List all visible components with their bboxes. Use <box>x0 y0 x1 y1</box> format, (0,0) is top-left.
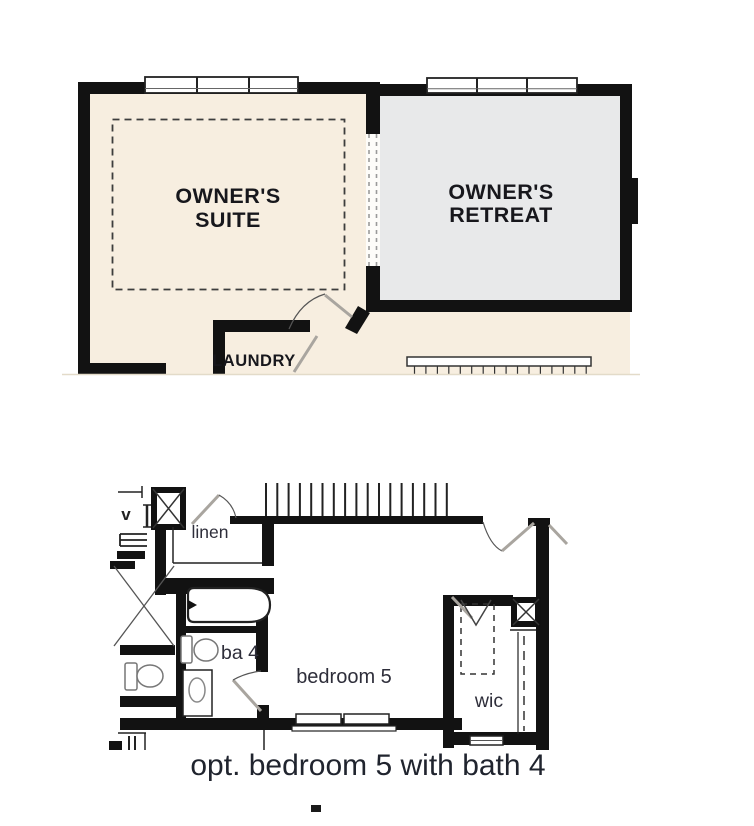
vent-label: v <box>121 505 131 524</box>
wall-linen-right <box>262 516 274 566</box>
laundry-label: LAUNDRY <box>212 352 296 370</box>
chase-box-linen <box>153 489 184 528</box>
wall-stub-upper-left <box>117 551 145 559</box>
wall-stub-lower-left <box>109 741 122 750</box>
bathtub <box>188 588 270 622</box>
toilet-hall <box>125 663 163 690</box>
retreat-windows <box>427 78 577 93</box>
wall-left <box>78 82 90 374</box>
wall-under-tub <box>176 626 268 633</box>
wall-pier <box>630 178 638 224</box>
owners-suite-label-line2: SUITE <box>195 208 261 232</box>
plan-caption: opt. bedroom 5 with bath 4 <box>190 749 545 782</box>
wall-wic-left <box>443 595 454 748</box>
bedroom5-label: bedroom 5 <box>296 666 392 688</box>
cropped-mark <box>311 805 321 812</box>
wall-bedroom-bottom <box>120 718 462 730</box>
floorplan-svg: OWNER'S SUITE OWNER'S RETREAT LAUNDRY <box>0 0 754 826</box>
vanity-sink <box>183 670 212 716</box>
suite-windows <box>145 77 298 93</box>
wall-right <box>536 518 549 750</box>
wall-bottom-left <box>78 363 166 374</box>
floorplan-page: OWNER'S SUITE OWNER'S RETREAT LAUNDRY <box>0 0 754 826</box>
bath4-label: ba 4 <box>221 642 259 664</box>
bedroom5-window <box>292 714 396 731</box>
owners-retreat-label-line1: OWNER'S <box>448 180 553 204</box>
linen-door <box>192 495 236 524</box>
wic-label: wic <box>474 690 503 712</box>
bedroom5-door <box>483 522 534 551</box>
bath4-door <box>233 671 261 711</box>
wall-hall-stub1 <box>120 645 175 655</box>
wall-hall-stub2 <box>120 696 178 707</box>
toilet-bath4 <box>181 636 218 663</box>
wic-window <box>470 736 503 745</box>
wall-stub-left <box>110 561 135 569</box>
suite-retreat-opening <box>366 134 380 266</box>
main-level-plan: OWNER'S SUITE OWNER'S RETREAT LAUNDRY <box>62 77 640 375</box>
adjacent-room-door <box>549 525 567 544</box>
owners-retreat-label-line2: RETREAT <box>449 203 552 227</box>
wic-dashed-shelves <box>461 604 494 674</box>
linen-label: linen <box>192 522 229 542</box>
chase-box-wic <box>513 599 539 625</box>
owners-suite-label-line1: OWNER'S <box>175 184 280 208</box>
wall-bottom-retreat <box>366 300 632 312</box>
wall-laundry-horizontal <box>213 320 310 332</box>
x-area <box>114 566 174 646</box>
hatched-wall <box>266 483 447 517</box>
optional-plan: v <box>109 483 567 750</box>
